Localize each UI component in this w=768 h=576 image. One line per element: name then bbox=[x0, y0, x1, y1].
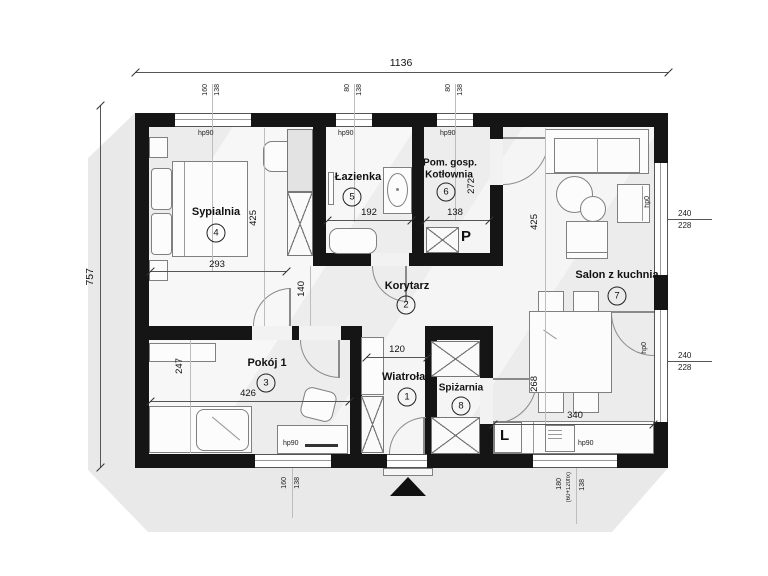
window-salon-right-upper bbox=[654, 163, 668, 275]
door-leaf-boiler-salon bbox=[503, 137, 549, 139]
extension-line bbox=[455, 84, 456, 221]
bedroom-armchair bbox=[263, 141, 290, 172]
window-width-label: 240 bbox=[678, 209, 691, 218]
window-height-label: 138 bbox=[214, 84, 221, 96]
desk-keyboard bbox=[305, 444, 338, 447]
room-number-wiatrolap: 1 bbox=[398, 388, 417, 407]
pantry-shelf-bottom bbox=[431, 417, 480, 454]
radiator bbox=[328, 172, 334, 205]
room-number-kotlownia: 6 bbox=[437, 183, 456, 202]
extension-line bbox=[545, 128, 546, 425]
window-width-label: 160 bbox=[202, 84, 209, 96]
salon-armchair-back bbox=[566, 252, 608, 259]
leader-line bbox=[668, 219, 712, 220]
overall-height-label: 757 bbox=[84, 268, 96, 286]
dimension-line bbox=[425, 220, 490, 221]
dimension-line-left bbox=[100, 105, 101, 468]
wall-bathroom-boiler bbox=[412, 113, 424, 266]
room1-height-label: 247 bbox=[174, 358, 185, 374]
pillow bbox=[151, 168, 172, 210]
sill-label-bathroom: hp90 bbox=[338, 130, 354, 137]
wardrobe-crossed bbox=[287, 192, 313, 256]
boiler-width-label: 138 bbox=[447, 207, 463, 218]
fridge-mark: L bbox=[500, 427, 509, 444]
room-number-lazienka: 5 bbox=[343, 188, 362, 207]
vestibule-wardrobe bbox=[361, 396, 384, 453]
salon-height-label: 425 bbox=[529, 214, 540, 230]
stove-line bbox=[548, 434, 562, 435]
window-width-note: (60+120fix) bbox=[566, 472, 572, 502]
dining-chair bbox=[573, 291, 599, 312]
bedroom-width-label: 293 bbox=[209, 259, 225, 270]
room-label-korytarz: Korytarz bbox=[385, 280, 430, 292]
window-height-label: 138 bbox=[356, 84, 363, 96]
window-room1-bottom bbox=[255, 454, 331, 468]
room-label-kotlownia: Kotłownia bbox=[425, 170, 473, 181]
vestibule-width-label: 120 bbox=[389, 344, 405, 355]
entrance-arrow bbox=[390, 477, 426, 496]
extension-line bbox=[264, 128, 265, 326]
washbasin-drain bbox=[396, 188, 399, 191]
window-bedroom-top bbox=[175, 113, 251, 127]
dimension-line bbox=[493, 424, 654, 425]
window-height-label: 138 bbox=[579, 479, 586, 491]
room-label-sypialnia: Sypialnia bbox=[192, 206, 240, 218]
dining-chair bbox=[538, 291, 564, 312]
terrace-door-right-lower bbox=[654, 310, 668, 422]
room-number-text: 8 bbox=[458, 401, 463, 412]
coffee-table-small bbox=[580, 196, 606, 222]
window-width-label: 180 bbox=[556, 478, 563, 490]
tv-cabinet-line bbox=[642, 186, 643, 221]
dining-chair bbox=[538, 392, 564, 413]
sill-label-right-lower: hp0 bbox=[641, 342, 648, 354]
dimension-line bbox=[150, 401, 350, 402]
bathtub bbox=[329, 228, 377, 254]
bathroom-width-label: 192 bbox=[361, 207, 377, 218]
window-height-label: 138 bbox=[457, 84, 464, 96]
boiler-unit bbox=[426, 227, 459, 253]
bedroom-height-label: 425 bbox=[248, 210, 259, 226]
entrance-threshold bbox=[387, 454, 427, 468]
sill-label-right-upper: hp0 bbox=[644, 196, 651, 208]
room-number-text: 7 bbox=[614, 291, 619, 302]
room-number-text: 3 bbox=[263, 378, 268, 389]
dining-table bbox=[529, 311, 612, 393]
counter-divider bbox=[533, 422, 534, 453]
bed-headboard-line bbox=[184, 162, 185, 256]
door-leaf-bedroom bbox=[289, 288, 291, 326]
extension-line bbox=[190, 340, 191, 453]
overall-width-label: 1136 bbox=[390, 57, 413, 69]
pillow bbox=[151, 213, 172, 255]
sill-label-room1: hp90 bbox=[283, 440, 299, 447]
room-number-pokoj1: 3 bbox=[257, 374, 276, 393]
room-number-spizarnia: 8 bbox=[452, 397, 471, 416]
dimension-line-top bbox=[135, 72, 668, 73]
room-number-sypialnia: 4 bbox=[207, 224, 226, 243]
window-height-label: 228 bbox=[678, 221, 691, 230]
wall-boiler-salon bbox=[490, 113, 503, 266]
sofa-divider bbox=[597, 138, 598, 173]
pantry-shelf-top bbox=[431, 341, 480, 377]
room-number-salon: 7 bbox=[608, 287, 627, 306]
room-label-wiatrolap: Wiatrołap bbox=[382, 371, 432, 383]
window-salon-bottom bbox=[533, 454, 617, 468]
wall-bedroom-bathroom bbox=[313, 113, 326, 266]
room-label-pokoj1: Pokój 1 bbox=[247, 357, 286, 369]
sill-label-bedroom: hp90 bbox=[198, 130, 214, 137]
window-height-label: 228 bbox=[678, 363, 691, 372]
dimension-line bbox=[150, 271, 287, 272]
room-number-text: 5 bbox=[349, 192, 354, 203]
stove-line bbox=[548, 430, 562, 431]
wardrobe-solid bbox=[287, 129, 313, 192]
door-opening-room1 bbox=[299, 326, 341, 340]
room-number-text: 1 bbox=[404, 392, 409, 403]
window-width-label: 160 bbox=[281, 477, 288, 489]
room-label-spizarnia: Spiżarnia bbox=[439, 383, 483, 394]
nightstand bbox=[149, 137, 168, 158]
entrance-porch bbox=[383, 468, 433, 476]
door-leaf-entrance bbox=[423, 417, 425, 454]
extension-line bbox=[576, 468, 577, 524]
kitchen-width-label: 340 bbox=[567, 410, 583, 421]
leader-line bbox=[668, 361, 712, 362]
shoe-cabinet bbox=[361, 337, 384, 395]
kitchen-height-label: 268 bbox=[529, 376, 540, 392]
extension-line bbox=[310, 266, 311, 326]
room-number-korytarz: 2 bbox=[397, 296, 416, 315]
room1-width-label: 426 bbox=[240, 388, 256, 399]
floor-plan: P L hp90 1136 757 160 138 80 138 bbox=[0, 0, 768, 576]
door-opening-bedroom bbox=[252, 326, 292, 340]
room-number-text: 4 bbox=[213, 228, 218, 239]
dimension-line bbox=[327, 220, 412, 221]
window-width-label: 240 bbox=[678, 351, 691, 360]
extension-line bbox=[292, 468, 293, 518]
room-number-text: 2 bbox=[403, 300, 408, 311]
window-height-label: 138 bbox=[294, 477, 301, 489]
door-leaf-terrace bbox=[611, 311, 654, 313]
room-label-salon: Salon z kuchnią bbox=[575, 269, 658, 281]
stove-line bbox=[548, 438, 562, 439]
room-label-lazienka: Łazienka bbox=[335, 171, 381, 183]
room-number-text: 6 bbox=[443, 187, 448, 198]
sill-label-kitchen: hp90 bbox=[578, 440, 594, 447]
room-label-pomgosp: Pom. gosp. bbox=[423, 158, 477, 169]
door-leaf-room1 bbox=[338, 340, 340, 378]
door-opening-boiler-salon bbox=[490, 139, 503, 185]
bed-blanket bbox=[196, 409, 249, 451]
dimension-line bbox=[366, 357, 428, 358]
extension-line bbox=[212, 84, 213, 272]
corridor-width-label: 140 bbox=[296, 281, 307, 297]
door-opening-bathroom bbox=[371, 253, 409, 266]
window-width-label: 80 bbox=[445, 84, 452, 92]
window-width-label: 80 bbox=[344, 84, 351, 92]
sill-label-boiler: hp90 bbox=[440, 130, 456, 137]
wall-exterior-left bbox=[135, 113, 149, 468]
washing-machine-mark: P bbox=[461, 228, 471, 245]
